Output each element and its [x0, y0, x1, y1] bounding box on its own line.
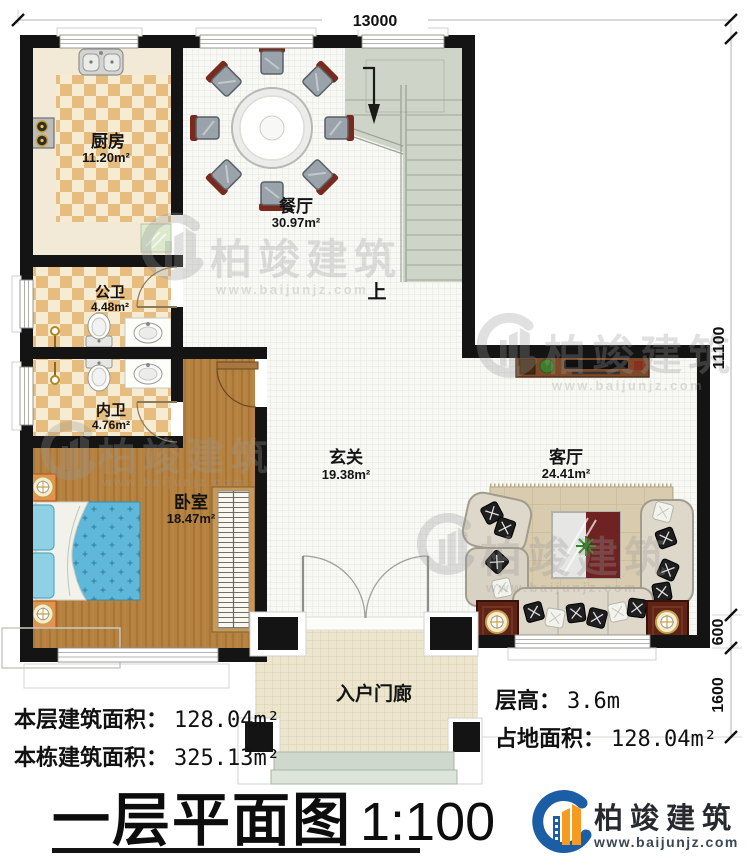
living-area: 24.41m²	[542, 466, 591, 481]
foyer-area: 19.38m²	[322, 467, 371, 482]
porch-label: 入户门廊	[336, 682, 412, 705]
brand-logo-icon	[538, 796, 586, 848]
watermark-brand: 柏竣建筑	[480, 534, 672, 581]
dining-label: 餐厅	[279, 196, 313, 216]
stove-icon	[30, 118, 54, 148]
floor-plan-drawing: 柏竣建筑 www.baijunjz.com 柏竣建筑 www.baijunjz.…	[0, 0, 750, 864]
bed	[27, 500, 140, 602]
entry-door-threshold	[300, 617, 430, 630]
sheet-scale: 1:100	[360, 792, 495, 852]
svg-text:层高：3.6m: 层高：3.6m	[495, 688, 620, 714]
kitchen-label: 厨房	[91, 131, 125, 151]
floor-plan-sheet: 柏竣建筑 www.baijunjz.com 柏竣建筑 www.baijunjz.…	[0, 0, 750, 864]
dining-area: 30.97m²	[272, 215, 321, 230]
dim-width: 13000	[353, 13, 398, 30]
wall-bedroom-top	[183, 347, 267, 359]
title-block: 一层平面图 1:100	[52, 788, 495, 853]
total-area-value: 325.13m²	[174, 746, 280, 771]
wall-bath-right	[171, 307, 183, 402]
watermark-url: www.baijunjz.com	[101, 475, 246, 489]
watermark-brand: 柏竣建筑	[210, 236, 402, 283]
dining-chair	[259, 45, 285, 74]
pillow	[30, 505, 54, 550]
foyer-floor	[267, 347, 345, 617]
watermark-url: www.baijunjz.com	[215, 282, 368, 297]
porch-steps	[271, 752, 457, 784]
inner-bath-area: 4.76m²	[92, 418, 130, 432]
height-value: 3.6m	[567, 689, 620, 714]
bedroom-door-leaf	[217, 362, 258, 369]
wall-bath-divider	[20, 347, 183, 359]
dim-height-main: 11100	[711, 327, 728, 370]
wardrobe	[212, 487, 255, 632]
kitchen-sink-icon	[79, 49, 123, 75]
brand-url: www.baijunjz.com	[593, 834, 739, 850]
svg-text:占地面积：128.04m²: 占地面积：128.04m²	[495, 726, 717, 752]
footprint-value: 128.04m²	[611, 727, 717, 752]
bedside-lamp-icon	[33, 477, 54, 498]
bedroom-area: 18.47m²	[167, 511, 216, 526]
dining-chair	[190, 115, 219, 141]
nightstand	[30, 601, 56, 628]
bedroom-entry-floor	[183, 359, 255, 448]
bathroom-sink-icon	[125, 318, 171, 347]
dining-set	[190, 45, 354, 211]
floor-area-label: 本层建筑面积：	[14, 707, 168, 732]
dim-height-porch: 1600	[710, 677, 727, 713]
inner-bath-label: 内卫	[96, 401, 126, 419]
table-lamp-icon	[656, 611, 678, 633]
wall-left	[20, 35, 33, 655]
footprint-label: 占地面积：	[495, 726, 605, 751]
brand-name: 柏竣建筑	[594, 801, 738, 835]
svg-text:本栋建筑面积：325.13m²: 本栋建筑面积：325.13m²	[14, 745, 280, 771]
public-bath-label: 公卫	[95, 284, 125, 301]
watermark-brand: 柏竣建筑	[98, 437, 274, 479]
dim-height-mid: 600	[710, 619, 727, 646]
watermark-url: www.baijunjz.com	[551, 378, 704, 393]
brand-logo: 柏竣建筑 www.baijunjz.com	[538, 796, 739, 850]
title-underline	[52, 848, 420, 853]
pillow	[30, 553, 54, 598]
wall-stair-right	[462, 35, 475, 352]
floor-area-value: 128.04m²	[174, 708, 280, 733]
dining-chair	[325, 115, 354, 141]
wall-kitchen-right	[171, 35, 183, 215]
height-label: 层高：	[495, 688, 561, 713]
sheet-title: 一层平面图	[52, 788, 352, 853]
toilet-icon	[86, 357, 112, 391]
nightstand	[30, 474, 56, 501]
public-bath-area: 4.48m²	[91, 300, 129, 314]
table-lamp-icon	[486, 611, 508, 633]
bathroom-sink-icon	[125, 359, 171, 388]
watermark-brand: 柏竣建筑	[544, 332, 736, 379]
bedroom-label: 卧室	[174, 492, 208, 512]
living-label: 客厅	[548, 447, 583, 467]
total-area-label: 本栋建筑面积：	[14, 745, 168, 770]
kitchen-area: 11.20m²	[82, 150, 130, 165]
svg-text:本层建筑面积：128.04m²: 本层建筑面积：128.04m²	[14, 707, 280, 733]
stairs-up-label: 上	[367, 281, 386, 303]
watermark-url: www.baijunjz.com	[485, 580, 638, 595]
toilet-icon	[86, 313, 112, 347]
foyer-label: 玄关	[329, 447, 363, 467]
bedside-lamp-icon	[33, 604, 54, 625]
